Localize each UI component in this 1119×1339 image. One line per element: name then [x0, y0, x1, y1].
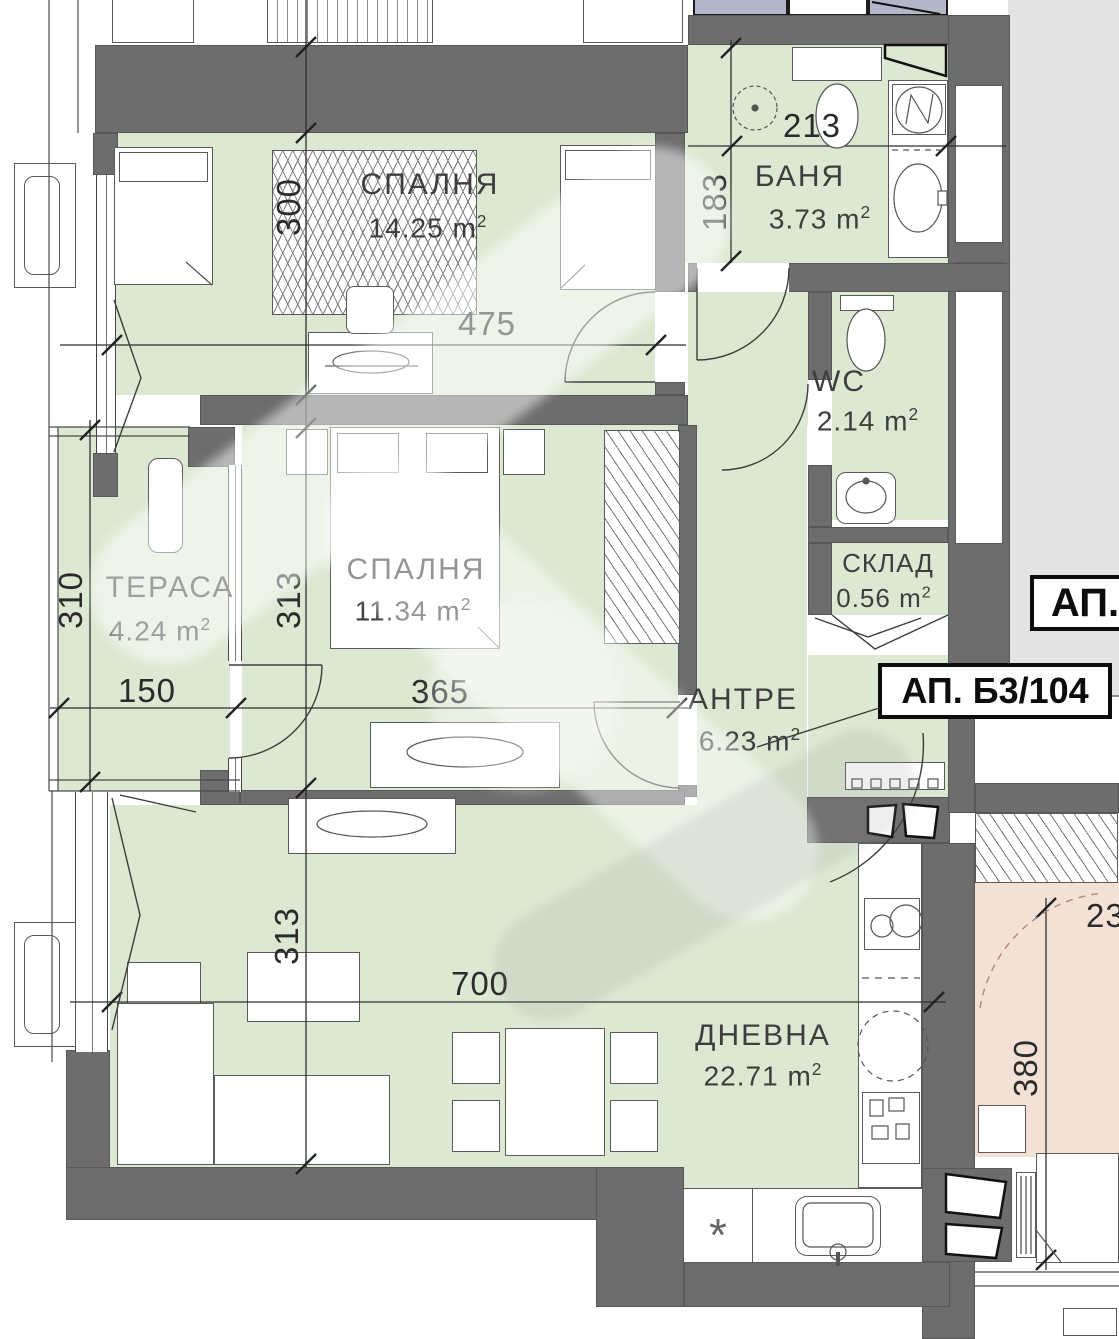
dim-bedroom2-width: 365	[380, 672, 500, 712]
room-label-wc: WC	[789, 365, 889, 399]
dim-neighbor-partial: 23	[1086, 896, 1119, 936]
room-label-bathroom: БАНЯ	[720, 160, 880, 194]
room-label-hall: АНТРЕ	[653, 683, 833, 717]
apartment-badge: АП. Б3/104	[878, 663, 1112, 719]
room-area-wc: 2.14 m2	[788, 404, 948, 437]
dim-living-width: 700	[420, 964, 540, 1004]
room-area-living: 22.71 m2	[663, 1059, 863, 1092]
dim-bath-width: 213	[752, 106, 872, 146]
room-area-storage: 0.56 m2	[804, 583, 964, 614]
floor-plan: *	[0, 0, 1119, 1339]
room-label-bedroom1: СПАЛНЯ	[330, 168, 530, 202]
dim-terrace-width: 150	[97, 671, 197, 711]
room-area-terrace: 4.24 m2	[70, 614, 250, 647]
room-label-bedroom2: СПАЛНЯ	[316, 553, 516, 587]
dim-bath-height: 183	[695, 142, 735, 262]
dim-bedroom1-width: 475	[427, 304, 547, 344]
apartment-badge-partial: АП.	[1030, 575, 1119, 631]
room-label-storage: СКЛАД	[808, 548, 968, 579]
dim-neighbor-height: 380	[1006, 1008, 1046, 1128]
dim-living-height: 313	[267, 876, 307, 996]
dim-bedroom2-height: 313	[269, 540, 309, 660]
room-area-bathroom: 3.73 m2	[730, 202, 910, 235]
dim-terrace-height: 310	[51, 540, 91, 660]
room-label-living: ДНЕВНА	[663, 1019, 863, 1053]
dim-bedroom1-height: 300	[269, 147, 309, 267]
room-area-hall: 6.23 m2	[660, 724, 840, 757]
room-label-terrace: ТЕРАСА	[60, 571, 280, 605]
room-area-bedroom1: 14.25 m2	[328, 211, 528, 244]
room-area-bedroom2: 11.34 m2	[313, 594, 513, 627]
